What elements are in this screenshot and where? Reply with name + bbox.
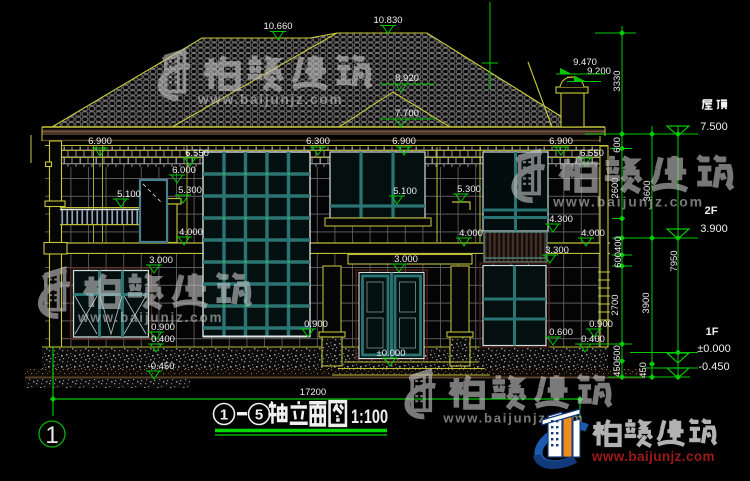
svg-text:600400: 600400 (613, 236, 624, 268)
svg-text:6.900: 6.900 (392, 136, 416, 147)
svg-text:±0.000: ±0.000 (697, 343, 731, 355)
svg-text:17200: 17200 (300, 387, 326, 398)
svg-text:5.100: 5.100 (117, 189, 141, 200)
svg-text:3.300: 3.300 (545, 245, 569, 256)
svg-text:3.000: 3.000 (149, 255, 173, 266)
svg-text:6.900: 6.900 (549, 136, 573, 147)
svg-text:-0.450: -0.450 (148, 361, 175, 372)
svg-text:0.400: 0.400 (151, 334, 175, 345)
svg-text:600: 600 (612, 137, 623, 153)
svg-text:10.660: 10.660 (263, 21, 292, 32)
svg-text:±0.000: ±0.000 (377, 348, 406, 359)
svg-text:0.900: 0.900 (589, 319, 613, 330)
svg-text:5.300: 5.300 (178, 185, 202, 196)
svg-text:6.000: 6.000 (172, 165, 196, 176)
svg-text:1F: 1F (706, 326, 719, 338)
svg-text:10.830: 10.830 (373, 15, 402, 26)
svg-text:2F: 2F (705, 205, 718, 217)
svg-text:450600: 450600 (612, 345, 623, 377)
svg-text:7.500: 7.500 (700, 121, 728, 133)
svg-text:6.900: 6.900 (88, 136, 112, 147)
svg-text:6.550: 6.550 (185, 148, 209, 159)
svg-text:2700: 2700 (610, 294, 621, 315)
svg-text:6.300: 6.300 (306, 136, 330, 147)
svg-text:4.000: 4.000 (179, 227, 203, 238)
svg-text:9.200: 9.200 (587, 66, 611, 77)
svg-text:3330: 3330 (612, 70, 623, 91)
svg-text:3.900: 3.900 (700, 223, 728, 235)
svg-text:4.300: 4.300 (549, 214, 573, 225)
svg-text:3.000: 3.000 (394, 254, 418, 265)
svg-text:5.100: 5.100 (393, 186, 417, 197)
svg-text:0.600: 0.600 (549, 327, 573, 338)
svg-text:0.400: 0.400 (581, 334, 605, 345)
svg-text:1:100: 1:100 (351, 407, 388, 428)
svg-text:5: 5 (255, 407, 263, 424)
svg-text:1: 1 (220, 407, 228, 424)
svg-text:4.000: 4.000 (459, 228, 483, 239)
svg-text:www.baijunjz.com: www.baijunjz.com (591, 449, 715, 464)
svg-text:6.550: 6.550 (580, 148, 604, 159)
svg-text:450: 450 (638, 362, 649, 378)
svg-text:7950: 7950 (669, 250, 680, 271)
svg-text:5.300: 5.300 (457, 184, 481, 195)
svg-text:7.700: 7.700 (395, 108, 419, 119)
svg-text:3900: 3900 (641, 292, 652, 313)
svg-text:-0.450: -0.450 (698, 361, 729, 373)
svg-text:1: 1 (45, 422, 58, 449)
svg-text:8.920: 8.920 (395, 73, 419, 84)
svg-text:4.000: 4.000 (581, 228, 605, 239)
svg-text:0.900: 0.900 (304, 319, 328, 330)
